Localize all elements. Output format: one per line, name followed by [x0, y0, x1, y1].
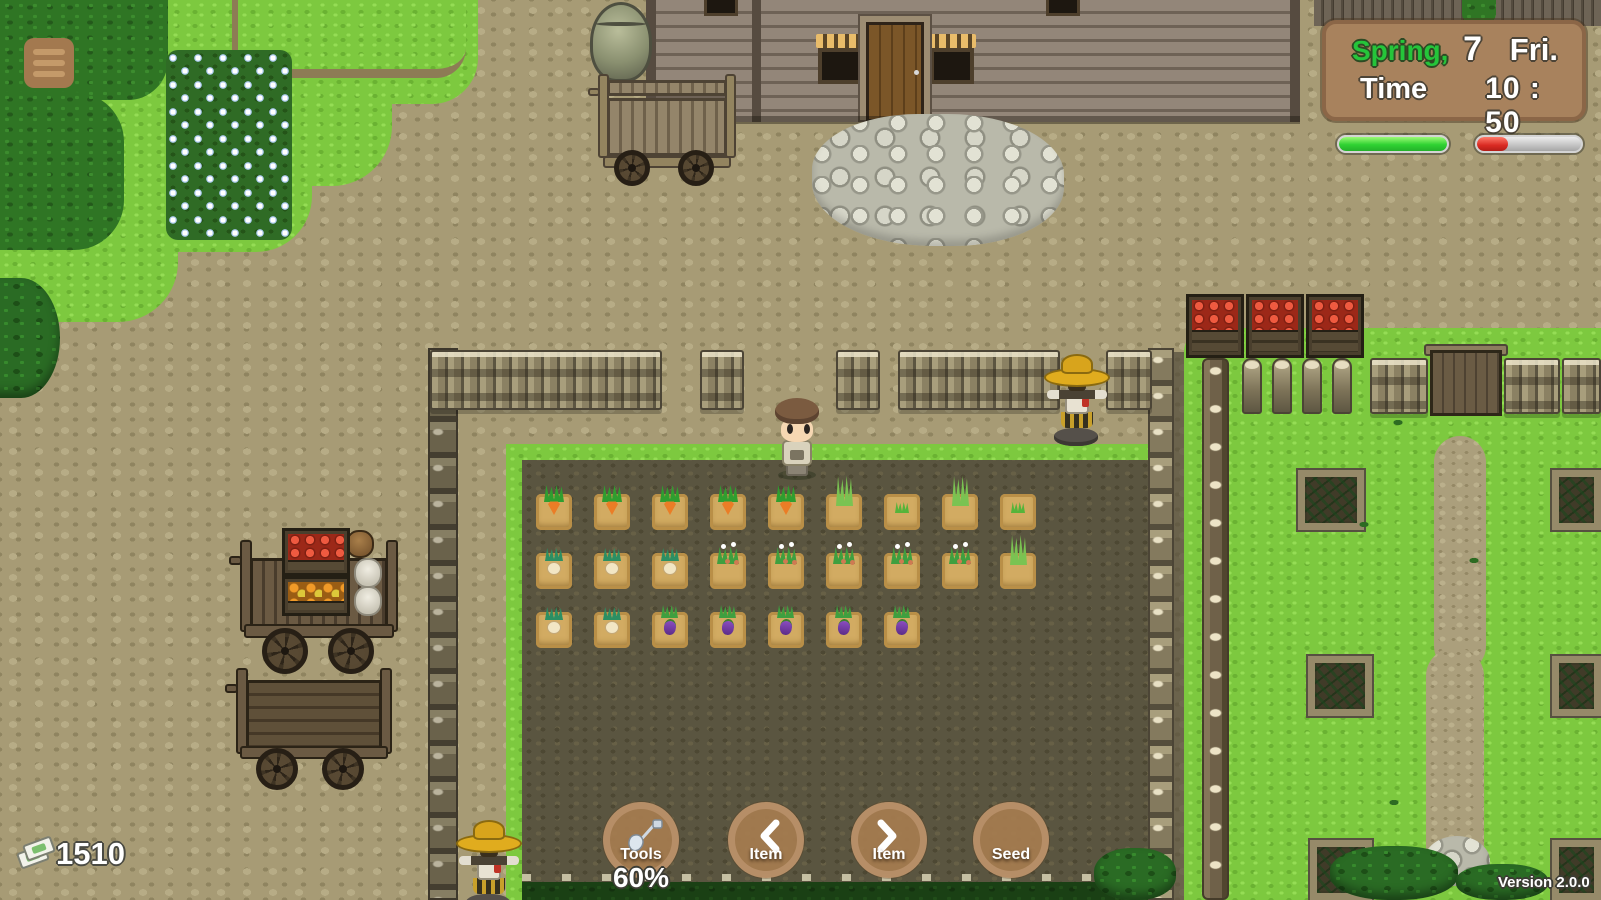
hamburger-icon	[33, 71, 65, 77]
health-bar-fill	[1339, 137, 1447, 151]
crop-berry[interactable]	[884, 553, 920, 589]
crop-carrot[interactable]	[652, 494, 688, 530]
planter-bed	[1552, 656, 1601, 716]
dirt-path	[1434, 436, 1486, 672]
fence-piece	[1106, 350, 1152, 410]
stamina-bar-fill	[1477, 137, 1508, 151]
crop-sprout[interactable]	[884, 494, 920, 530]
time-value: 10 : 50	[1485, 72, 1558, 140]
day-number: 7	[1448, 30, 1496, 69]
crop-berry[interactable]	[768, 553, 804, 589]
crop-turnip[interactable]	[594, 612, 630, 648]
hamburger-icon	[33, 49, 65, 55]
version-label: Version 2.0.0	[1498, 874, 1590, 891]
crop-tall[interactable]	[942, 494, 978, 530]
empty-cart	[236, 650, 392, 778]
fence-piece	[836, 350, 880, 410]
crop-berry[interactable]	[710, 553, 746, 589]
player-character	[770, 398, 824, 482]
fence-piece	[1504, 358, 1560, 414]
crate-red-fruit	[282, 528, 350, 576]
fence-left	[428, 348, 458, 900]
crop-eggplant[interactable]	[652, 612, 688, 648]
crop-carrot[interactable]	[768, 494, 804, 530]
menu-button[interactable]	[24, 38, 74, 88]
fence-top	[430, 350, 662, 410]
crop-turnip[interactable]	[536, 553, 572, 589]
fence-post	[1272, 358, 1292, 414]
planter-bed	[1552, 470, 1601, 530]
game-screen: Spring, 7 Fri. Time 10 : 50 1510 Tools I…	[0, 0, 1601, 900]
grass-tuft	[1466, 556, 1482, 565]
item-prev-button[interactable]: Item	[728, 802, 804, 878]
fence-right	[1148, 348, 1174, 900]
gate-door[interactable]	[1430, 350, 1502, 416]
date-time-panel: Spring, 7 Fri. Time 10 : 50	[1322, 20, 1586, 121]
crop-sprout[interactable]	[1000, 494, 1036, 530]
health-bar	[1337, 135, 1449, 153]
weekday-label: Fri.	[1497, 32, 1558, 68]
log-post-column	[1202, 358, 1229, 900]
fence-piece	[1370, 358, 1428, 414]
item-prev-button-label: Item	[735, 846, 797, 864]
season-label: Spring,	[1352, 35, 1448, 67]
tomato-crate	[1246, 294, 1304, 358]
fence-piece	[700, 350, 744, 410]
fence-post	[1242, 358, 1262, 414]
produce-cart	[240, 514, 398, 664]
crop-turnip[interactable]	[536, 612, 572, 648]
crop-eggplant[interactable]	[884, 612, 920, 648]
crop-berry[interactable]	[942, 553, 978, 589]
fence-post	[1332, 358, 1352, 414]
seed-button-label: Seed	[980, 846, 1042, 864]
grass-tuft	[1390, 418, 1406, 427]
hamburger-icon	[33, 60, 65, 66]
tree	[1094, 848, 1176, 900]
crop-tall[interactable]	[1000, 553, 1036, 589]
tomato-crate	[1306, 294, 1364, 358]
sack	[354, 586, 382, 616]
crop-carrot[interactable]	[594, 494, 630, 530]
crop-eggplant[interactable]	[710, 612, 746, 648]
crop-turnip[interactable]	[594, 553, 630, 589]
crop-turnip[interactable]	[652, 553, 688, 589]
item-next-button[interactable]: Item	[851, 802, 927, 878]
grass-tuft	[1356, 520, 1372, 529]
fence-piece	[1562, 358, 1601, 414]
crate-orange-fruit	[282, 576, 350, 616]
tomato-crate	[1186, 294, 1244, 358]
seed-button[interactable]: Seed	[973, 802, 1049, 878]
crop-berry[interactable]	[826, 553, 862, 589]
small-barrel	[346, 530, 374, 558]
crop-carrot[interactable]	[536, 494, 572, 530]
planter-bed	[1298, 470, 1364, 530]
scarecrow	[1044, 354, 1110, 448]
crop-carrot[interactable]	[710, 494, 746, 530]
sack	[354, 558, 382, 588]
item-next-button-label: Item	[858, 846, 920, 864]
tool-charge-label: 60%	[599, 862, 683, 894]
fence-post	[1302, 358, 1322, 414]
tree	[1330, 846, 1458, 900]
grass-tuft	[1386, 798, 1402, 807]
crop-eggplant[interactable]	[768, 612, 804, 648]
planter-bed	[1308, 656, 1372, 716]
money-icon	[16, 838, 58, 872]
crop-eggplant[interactable]	[826, 612, 862, 648]
stamina-bar	[1475, 135, 1583, 153]
time-label: Time	[1360, 73, 1427, 106]
fence-top	[898, 350, 1060, 410]
scarecrow	[456, 820, 522, 900]
crop-tall[interactable]	[826, 494, 862, 530]
planter-bed	[1552, 840, 1601, 900]
money-amount: 1510	[56, 836, 125, 872]
